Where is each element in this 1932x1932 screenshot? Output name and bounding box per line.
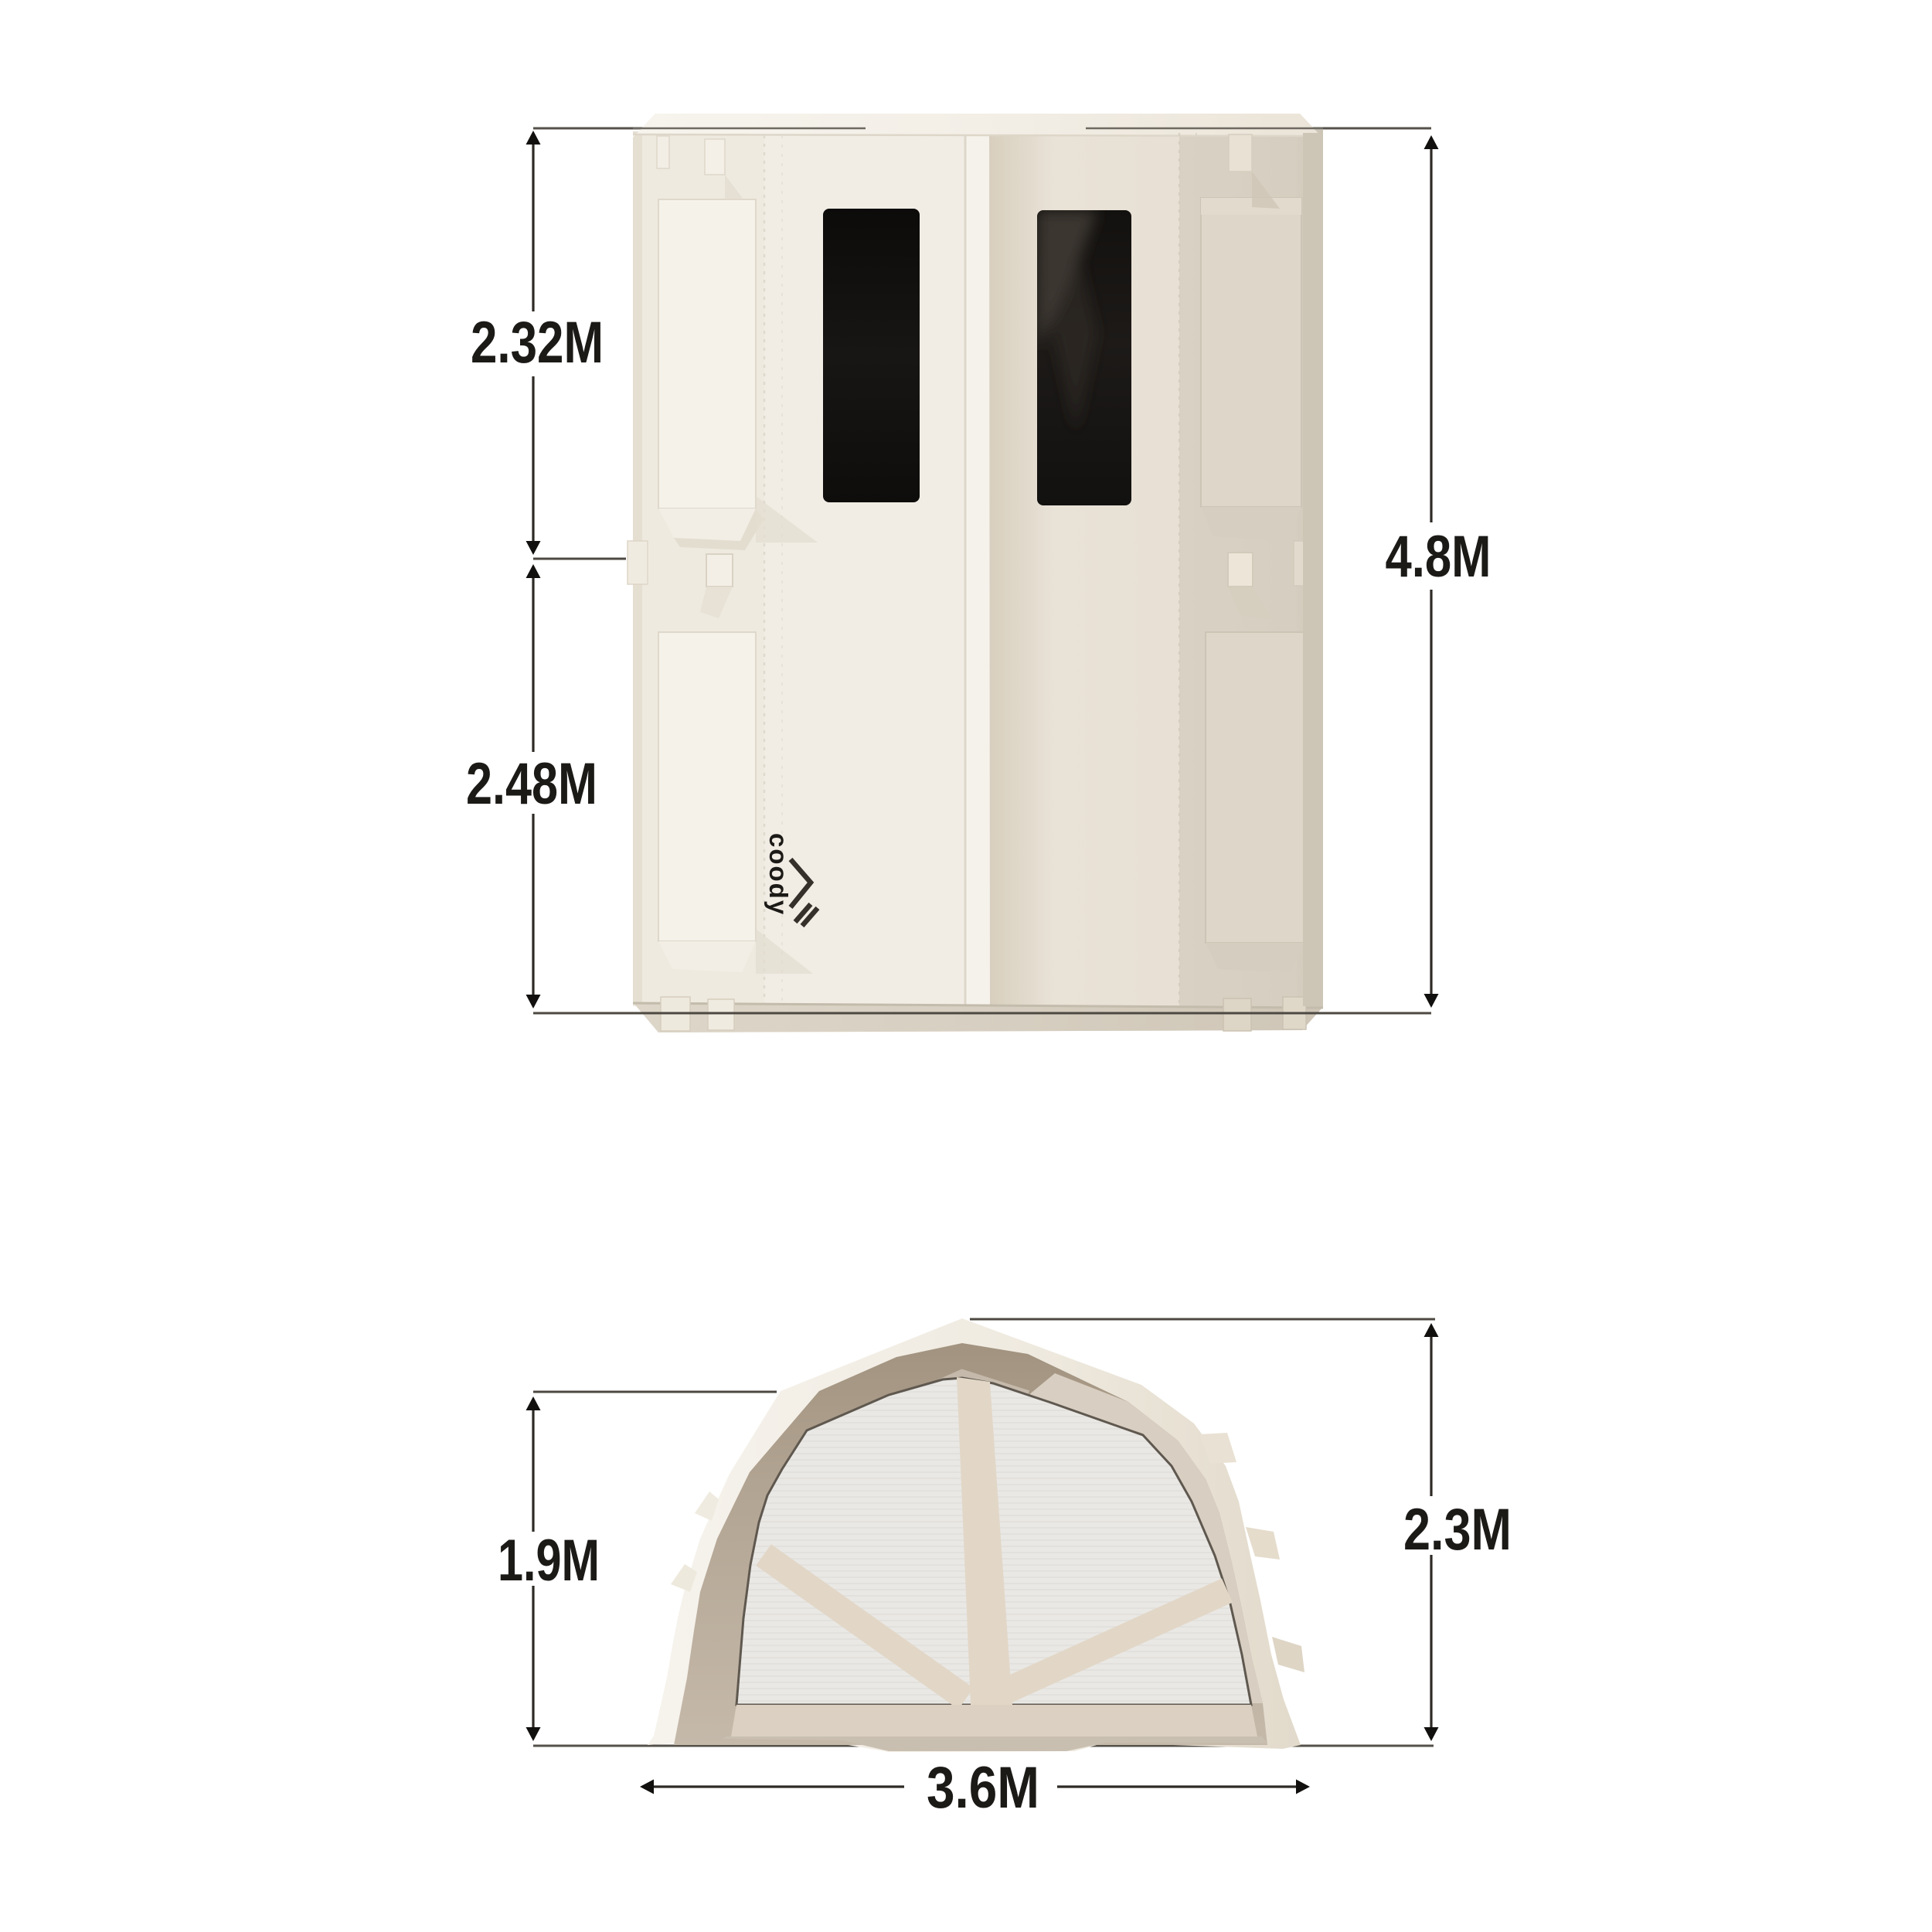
svg-text:2.32M: 2.32M [471, 310, 604, 376]
svg-text:3.6M: 3.6M [927, 1755, 1039, 1821]
svg-text:coody: coody [764, 833, 793, 916]
svg-text:1.9M: 1.9M [498, 1528, 600, 1594]
svg-text:2.48M: 2.48M [466, 751, 597, 817]
svg-text:4.8M: 4.8M [1386, 524, 1492, 590]
svg-text:2.3M: 2.3M [1403, 1497, 1512, 1563]
